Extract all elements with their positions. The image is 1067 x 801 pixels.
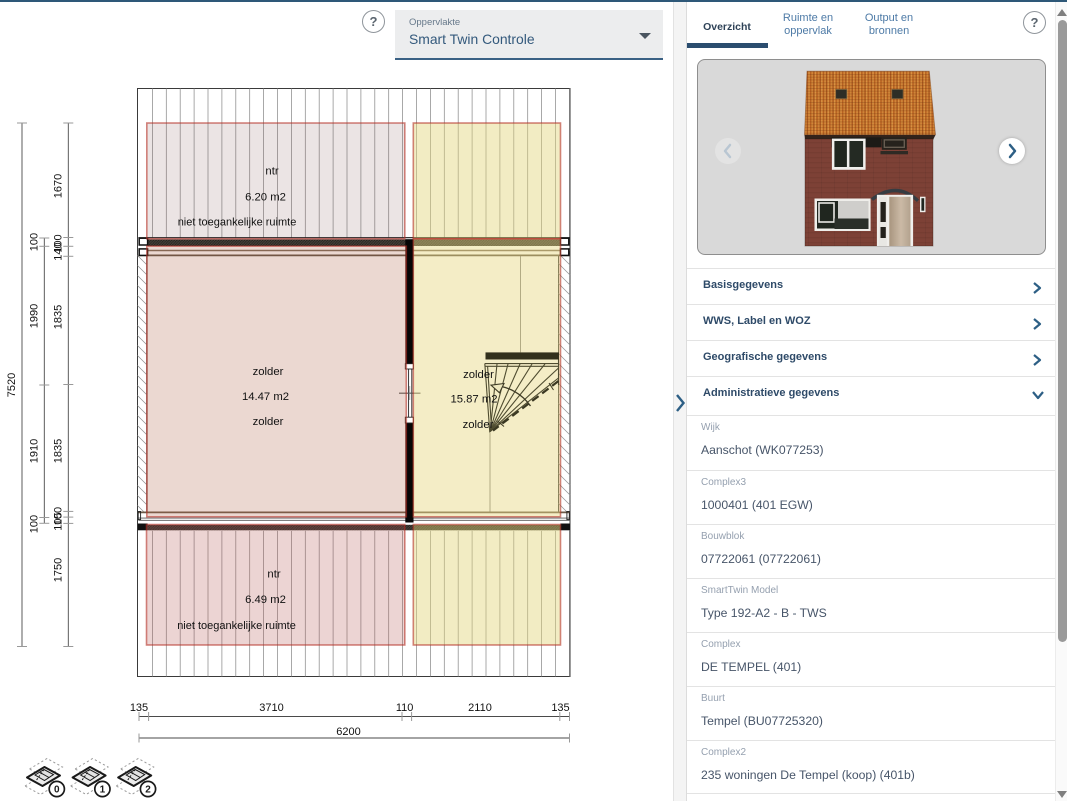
svg-text:1990: 1990 [29, 304, 41, 328]
svg-text:2110: 2110 [468, 702, 492, 714]
svg-text:110: 110 [396, 702, 414, 714]
svg-text:1835: 1835 [53, 305, 65, 329]
svg-text:1: 1 [100, 785, 106, 796]
svg-text:niet toegankelijke ruimte: niet toegankelijke ruimte [178, 217, 297, 229]
svg-text:6.49 m2: 6.49 m2 [245, 594, 286, 606]
svg-text:7520: 7520 [6, 373, 18, 397]
svg-text:135: 135 [551, 702, 569, 714]
svg-text:14.47 m2: 14.47 m2 [242, 391, 289, 403]
svg-text:3710: 3710 [259, 702, 283, 714]
svg-text:105: 105 [53, 512, 65, 530]
svg-text:zolder: zolder [253, 416, 284, 428]
svg-text:15.87 m2: 15.87 m2 [450, 394, 497, 406]
svg-text:zolder: zolder [253, 366, 284, 378]
svg-text:140: 140 [53, 242, 65, 260]
svg-text:ntr: ntr [265, 166, 278, 178]
svg-text:1750: 1750 [53, 558, 65, 582]
svg-text:1670: 1670 [53, 174, 65, 198]
svg-text:niet toegankelijke ruimte: niet toegankelijke ruimte [177, 620, 296, 632]
svg-text:1835: 1835 [53, 439, 65, 463]
svg-text:1910: 1910 [29, 439, 41, 463]
svg-text:ntr: ntr [267, 569, 280, 581]
svg-text:zolder: zolder [463, 419, 494, 431]
svg-text:2: 2 [145, 785, 151, 796]
svg-text:0: 0 [54, 785, 60, 796]
svg-text:6.20 m2: 6.20 m2 [245, 192, 286, 204]
svg-text:100: 100 [29, 515, 41, 533]
svg-text:zolder: zolder [463, 369, 494, 381]
svg-text:100: 100 [29, 233, 41, 251]
svg-text:6200: 6200 [336, 726, 360, 738]
svg-text:135: 135 [130, 702, 148, 714]
